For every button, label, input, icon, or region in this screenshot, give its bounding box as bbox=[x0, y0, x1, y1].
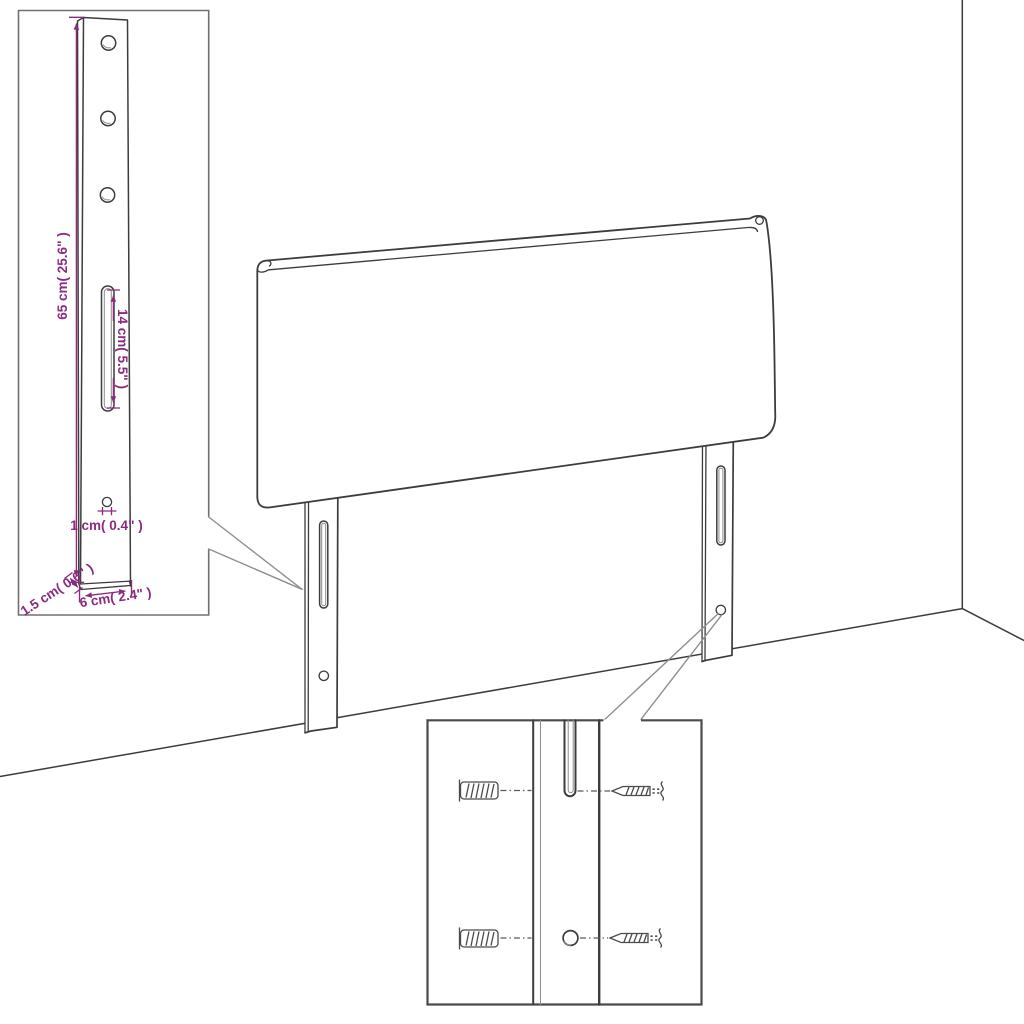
leg-detail-inset: 65 cm( 25.6" ) 14 cm( 5.5" ) 1 cm( 0.4" … bbox=[18, 11, 209, 619]
headboard-panel bbox=[257, 216, 775, 508]
floor-line-right bbox=[962, 609, 1024, 641]
diagram-canvas: 65 cm( 25.6" ) 14 cm( 5.5" ) 1 cm( 0.4" … bbox=[0, 0, 1024, 1024]
height-dimension-label: 65 cm( 25.6" ) bbox=[55, 232, 70, 319]
slot-length-dimension-label: 14 cm( 5.5" ) bbox=[115, 309, 130, 389]
hole-diameter-dimension-label: 1 cm( 0.4" ) bbox=[70, 518, 142, 533]
headboard-dimension-diagram: 65 cm( 25.6" ) 14 cm( 5.5" ) 1 cm( 0.4" … bbox=[0, 0, 1024, 1024]
leg-detail-callout bbox=[209, 517, 302, 589]
leg-detail-drawing bbox=[78, 18, 131, 591]
mounting-detail-inset bbox=[428, 720, 702, 1005]
